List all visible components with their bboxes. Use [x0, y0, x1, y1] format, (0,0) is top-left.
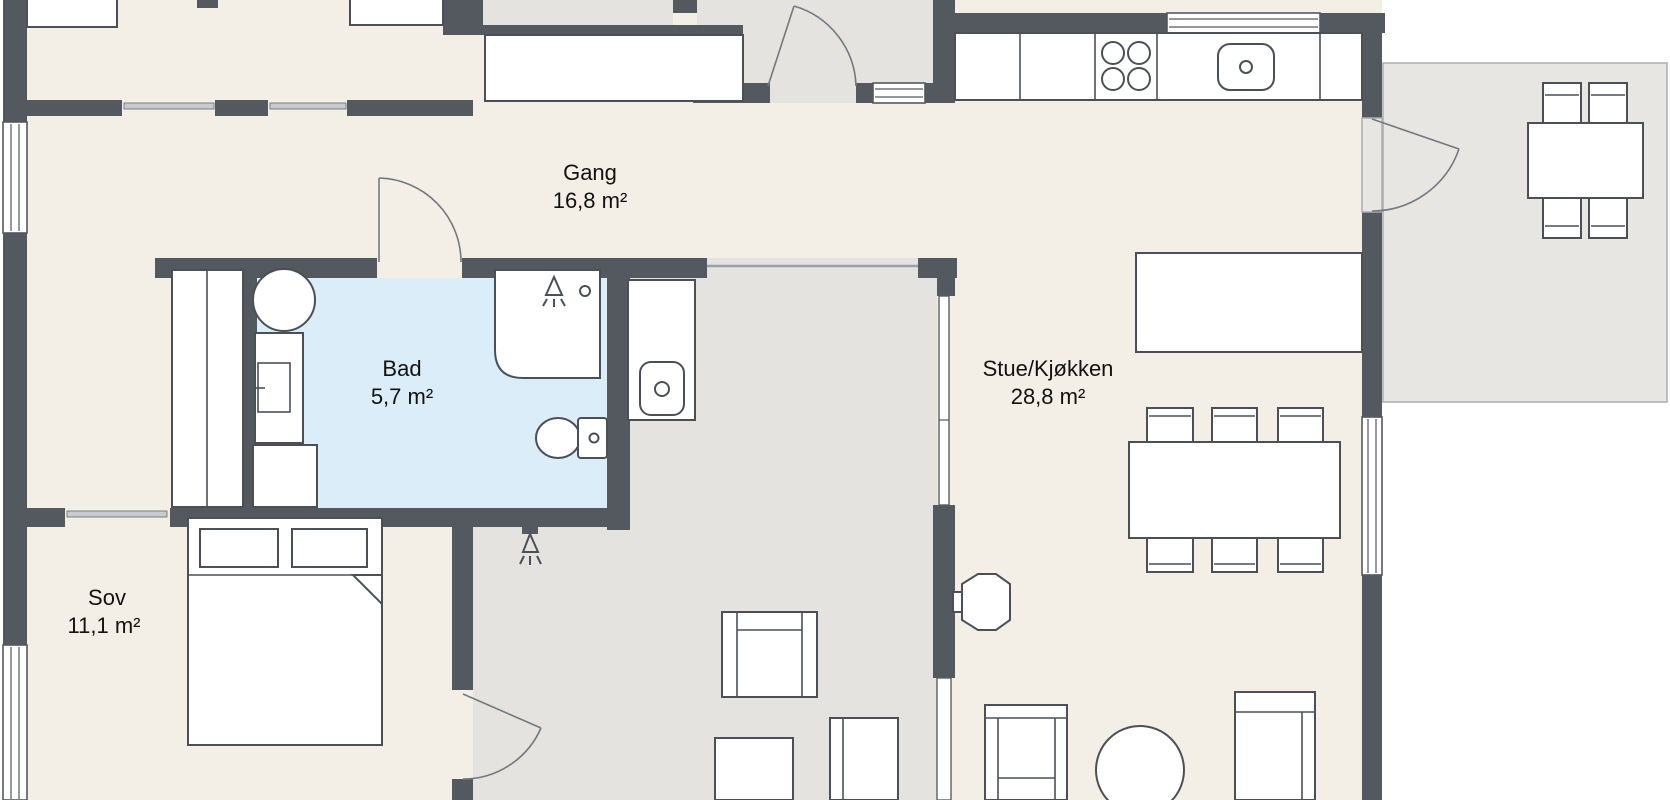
kitchen-north-wall	[933, 13, 1167, 33]
dining-chair	[1212, 538, 1257, 572]
bathroom-door-opening	[377, 258, 462, 278]
stue-label: Stue/Kjøkken	[983, 356, 1114, 381]
bedroom-north-wall-stub	[27, 508, 65, 527]
bad-area: 5,7 m²	[371, 384, 433, 409]
entry-window	[873, 83, 925, 103]
entry-front-wall-left	[743, 83, 770, 103]
kitchen-island	[1136, 253, 1362, 352]
pillow	[292, 529, 367, 567]
dining-chair	[1147, 408, 1193, 442]
partition-mid-post	[933, 505, 955, 678]
kitchen-window	[1167, 13, 1320, 33]
bathroom-east-wall	[607, 258, 630, 530]
dining-chair	[1278, 408, 1323, 442]
kitchen-counter	[955, 33, 1362, 100]
sofa	[1235, 692, 1315, 800]
dining-chair	[1147, 538, 1193, 572]
north-hall-wall	[3, 100, 473, 116]
outdoor-chair	[1543, 198, 1581, 238]
sliding-door-1	[124, 103, 214, 109]
hall-wardrobe	[485, 35, 743, 101]
east-window	[1362, 417, 1382, 575]
bedroom-east-wall-stub	[452, 779, 473, 800]
recess-east-stub	[673, 0, 697, 13]
outdoor-table	[1528, 123, 1643, 198]
bedroom-sliding-door	[67, 511, 167, 517]
east-wall-bottom	[1362, 575, 1382, 800]
glass-partition-upper	[939, 296, 949, 505]
west-window-upper	[3, 122, 27, 233]
terrace-door-opening	[1362, 118, 1382, 212]
bad-label: Bad	[382, 356, 421, 381]
dining-table	[1129, 442, 1340, 538]
outdoor-chair	[1589, 198, 1627, 238]
vanity-cabinet	[255, 333, 303, 443]
recess-south-wall	[483, 25, 693, 35]
outdoor-armchair	[722, 612, 817, 697]
outdoor-chair	[1543, 83, 1581, 123]
recess-west-wall	[443, 0, 483, 35]
east-wall-top	[1362, 13, 1382, 118]
sliding-door-2	[270, 103, 346, 109]
floor-plan: Gang 16,8 m² Bad 5,7 m² Stue/Kjøkken 28,…	[0, 0, 1670, 800]
outdoor-chair	[715, 738, 793, 800]
west-window-lower	[3, 645, 27, 800]
pillow	[200, 529, 278, 567]
basin-icon	[253, 269, 315, 331]
outdoor-sofa	[830, 718, 898, 800]
sov-area: 11,1 m²	[68, 613, 141, 638]
dining-chair	[1278, 538, 1323, 572]
dining-group	[1129, 408, 1340, 572]
bath-cabinet	[253, 445, 317, 507]
entry-front-wall-right	[856, 83, 873, 103]
stue-area: 28,8 m²	[1011, 384, 1086, 409]
dining-chair	[1212, 408, 1257, 442]
wardrobe-top-mid	[350, 0, 443, 25]
double-bed	[188, 518, 382, 745]
partition-corner-post-v	[937, 258, 955, 296]
gang-label: Gang	[563, 160, 617, 185]
outdoor-chair	[1589, 83, 1627, 123]
floor-plan-canvas: Gang 16,8 m² Bad 5,7 m² Stue/Kjøkken 28,…	[0, 0, 1670, 800]
east-wall-mid	[1362, 212, 1382, 417]
gang-area: 16,8 m²	[553, 188, 628, 213]
glass-partition-lower	[937, 678, 951, 800]
shower-cabin	[495, 270, 600, 378]
sov-label: Sov	[88, 585, 126, 610]
outdoor-sink-counter	[628, 280, 695, 420]
toilet-icon	[536, 418, 607, 458]
entry-door-opening	[770, 83, 856, 103]
top-room-divider-stub	[197, 0, 218, 8]
bedroom-east-wall	[452, 527, 473, 690]
bedroom-terrace-door-opening	[452, 690, 473, 779]
wardrobe-top-left	[27, 0, 117, 27]
lounge-chair	[985, 705, 1067, 800]
